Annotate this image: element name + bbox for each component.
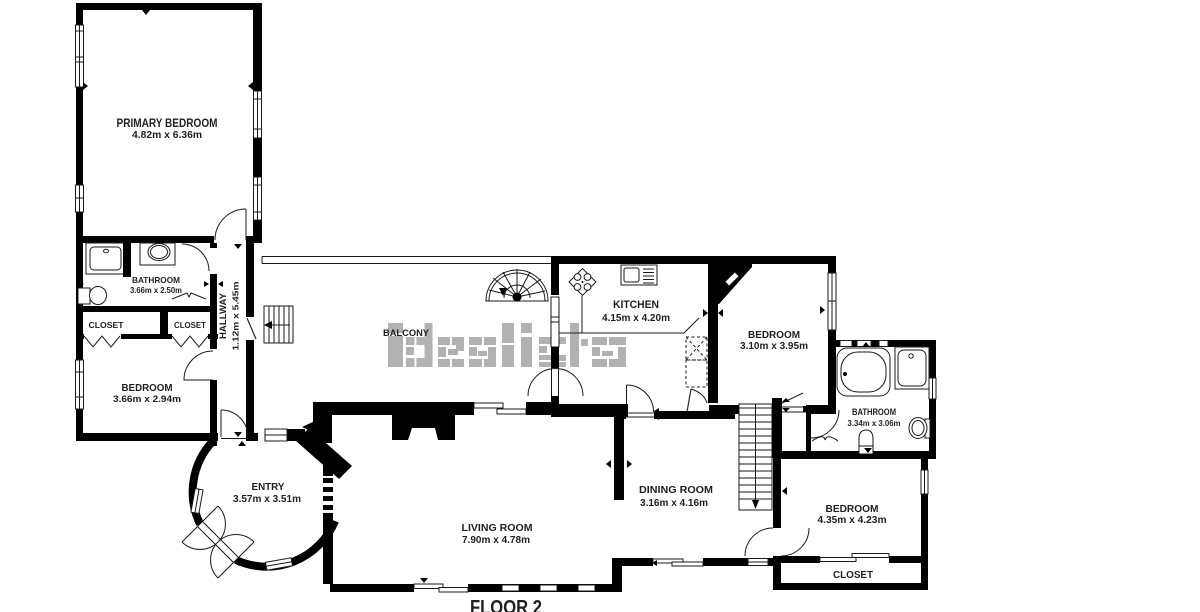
svg-text:HALLWAY: HALLWAY bbox=[218, 293, 228, 339]
svg-text:3.10m x 3.95m: 3.10m x 3.95m bbox=[740, 341, 808, 352]
svg-text:7.90m x 4.78m: 7.90m x 4.78m bbox=[462, 535, 530, 546]
svg-text:FLOOR 2: FLOOR 2 bbox=[470, 597, 542, 612]
svg-text:4.82m x 6.36m: 4.82m x 6.36m bbox=[132, 130, 202, 141]
svg-text:CLOSET: CLOSET bbox=[89, 321, 124, 330]
svg-text:ENTRY: ENTRY bbox=[252, 482, 285, 493]
svg-text:4.15m x 4.20m: 4.15m x 4.20m bbox=[602, 313, 670, 324]
svg-text:3.16m x 4.16m: 3.16m x 4.16m bbox=[640, 498, 708, 509]
svg-text:CLOSET: CLOSET bbox=[174, 321, 206, 330]
svg-text:BEDROOM: BEDROOM bbox=[122, 383, 173, 394]
svg-text:3.66m x 2.94m: 3.66m x 2.94m bbox=[113, 394, 181, 405]
svg-text:CLOSET: CLOSET bbox=[833, 570, 873, 581]
svg-text:DINING ROOM: DINING ROOM bbox=[639, 484, 713, 496]
svg-text:LIVING ROOM: LIVING ROOM bbox=[462, 522, 533, 534]
svg-text:BATHROOM: BATHROOM bbox=[132, 275, 180, 285]
svg-text:KITCHEN: KITCHEN bbox=[613, 299, 659, 311]
svg-text:1.12m x 5.45m: 1.12m x 5.45m bbox=[231, 281, 241, 351]
svg-text:3.34m x 3.06m: 3.34m x 3.06m bbox=[848, 418, 901, 428]
svg-text:BALCONY: BALCONY bbox=[383, 328, 429, 338]
svg-text:4.35m x 4.23m: 4.35m x 4.23m bbox=[818, 515, 887, 526]
svg-text:BATHROOM: BATHROOM bbox=[852, 407, 896, 417]
svg-text:BEDROOM: BEDROOM bbox=[748, 329, 800, 341]
svg-text:PRIMARY BEDROOM: PRIMARY BEDROOM bbox=[117, 118, 218, 130]
svg-text:3.57m x 3.51m: 3.57m x 3.51m bbox=[233, 494, 301, 505]
svg-text:BEDROOM: BEDROOM bbox=[826, 503, 879, 515]
svg-text:3.66m x 2.50m: 3.66m x 2.50m bbox=[130, 286, 182, 295]
